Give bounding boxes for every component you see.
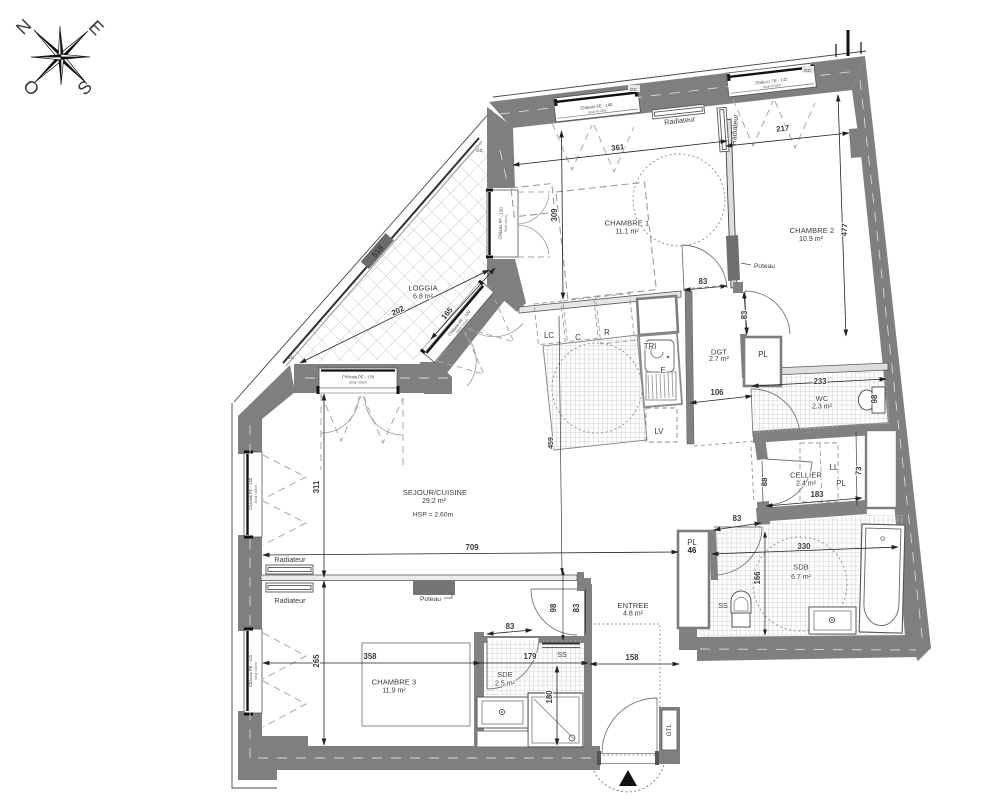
svg-text:311: 311 [312,480,321,493]
svg-text:2.5 m²: 2.5 m² [495,680,516,688]
svg-text:GC: GC [287,355,295,360]
svg-text:GC: GC [804,68,812,73]
svg-text:83: 83 [733,514,742,523]
svg-text:CHAMBRE 3: CHAMBRE 3 [372,678,417,687]
svg-text:265: 265 [312,654,321,668]
svg-text:CHAMBRE 2: CHAMBRE 2 [790,226,835,235]
svg-text:SDE: SDE [497,670,513,679]
svg-text:Châssis PF - 120: Châssis PF - 120 [342,375,375,380]
svg-text:10.9 m²: 10.9 m² [799,235,824,243]
svg-text:83: 83 [699,277,708,286]
svg-text:SS: SS [557,650,567,659]
svg-text:Seuil <20cm: Seuil <20cm [504,214,509,232]
svg-text:179: 179 [523,652,537,661]
svg-text:CHAMBRE 1: CHAMBRE 1 [605,219,650,228]
svg-text:Radiateur: Radiateur [274,596,306,605]
svg-text:330: 330 [797,542,811,551]
svg-text:LL: LL [830,463,839,472]
svg-text:98: 98 [549,603,558,612]
svg-text:Radiateur: Radiateur [274,555,306,564]
svg-text:309: 309 [550,208,559,222]
svg-text:2.7 m²: 2.7 m² [709,355,730,363]
svg-text:29.2 m²: 29.2 m² [422,497,447,505]
svg-text:Poteau: Poteau [754,263,775,270]
svg-text:709: 709 [465,543,479,552]
svg-text:LOGGIA: LOGGIA [408,284,437,293]
svg-text:SS: SS [718,601,728,610]
svg-text:GC: GC [630,87,638,92]
svg-text:158: 158 [625,653,639,662]
svg-text:CELLIER: CELLIER [790,471,822,480]
svg-text:83: 83 [740,310,749,319]
svg-text:TRI: TRI [644,342,657,351]
svg-text:166: 166 [753,571,762,585]
svg-text:183: 183 [810,490,824,499]
svg-text:SDB: SDB [793,563,809,572]
svg-text:R: R [604,328,610,337]
svg-text:73: 73 [854,466,863,476]
svg-text:477: 477 [840,223,850,236]
svg-text:4.8 m²: 4.8 m² [623,610,644,618]
svg-text:358: 358 [363,652,377,661]
svg-text:88: 88 [760,477,769,487]
svg-text:Châssis FE - 140: Châssis FE - 140 [248,477,253,510]
svg-text:83: 83 [572,603,581,612]
svg-text:83: 83 [506,622,515,631]
svg-text:PL: PL [758,350,768,359]
svg-text:46: 46 [688,546,697,555]
svg-text:2.4 m²: 2.4 m² [796,480,817,488]
svg-text:6.8 m²: 6.8 m² [413,293,434,301]
svg-text:C: C [575,333,581,342]
svg-text:LC: LC [544,331,554,340]
svg-text:233: 233 [813,377,827,386]
svg-text:HSP = 2.60m: HSP = 2.60m [413,512,454,519]
svg-text:E: E [660,366,665,375]
svg-text:GC: GC [476,148,484,153]
svg-text:PL: PL [836,479,846,488]
svg-text:Seuil <20cm: Seuil <20cm [254,662,258,680]
svg-text:459: 459 [548,437,555,449]
svg-text:361: 361 [611,142,626,152]
svg-text:11.9 m²: 11.9 m² [382,687,406,695]
svg-text:SEJOUR/CUISINE: SEJOUR/CUISINE [403,488,467,497]
svg-text:Seuil <20cm: Seuil <20cm [254,485,258,503]
svg-text:Seuil <20cm: Seuil <20cm [349,381,367,385]
svg-text:Châssis FE - 140: Châssis FE - 140 [248,654,253,687]
svg-text:98: 98 [870,394,879,403]
svg-text:217: 217 [776,123,790,133]
svg-text:180: 180 [545,690,554,704]
svg-text:LV: LV [655,427,665,436]
svg-text:Poteau: Poteau [420,596,441,603]
svg-text:GTL: GTL [666,723,673,736]
svg-text:106: 106 [710,388,724,397]
svg-text:6.7 m²: 6.7 m² [791,573,812,581]
svg-text:2.3 m²: 2.3 m² [812,403,833,411]
svg-text:11.1 m²: 11.1 m² [615,228,639,236]
